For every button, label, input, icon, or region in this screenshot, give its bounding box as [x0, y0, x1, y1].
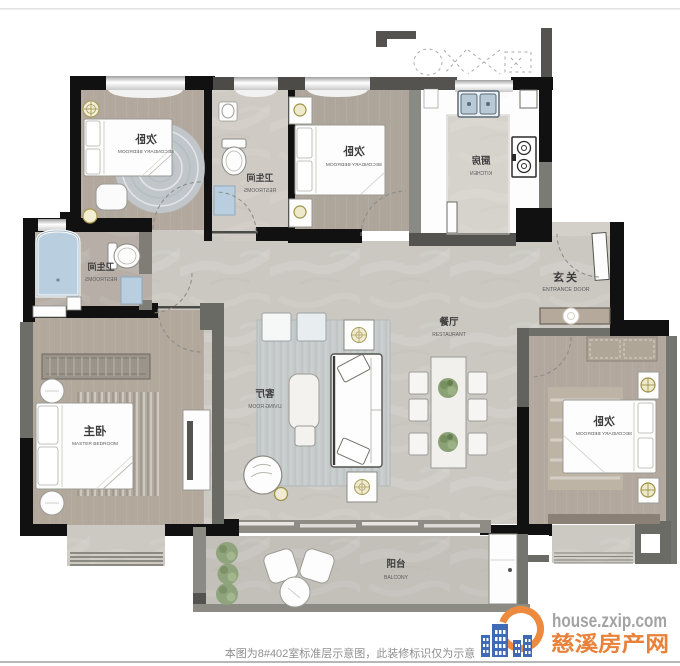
svg-text:SECONDARY BEDROOM: SECONDARY BEDROOM — [326, 162, 382, 168]
svg-text:house.zxip.com: house.zxip.com — [552, 611, 667, 632]
svg-text:LIVING ROOM: LIVING ROOM — [248, 404, 281, 410]
svg-text:KITCHEN: KITCHEN — [470, 171, 492, 177]
svg-text:次卧: 次卧 — [135, 132, 157, 146]
svg-text:卫生间: 卫生间 — [87, 261, 114, 272]
svg-text:SECONDARY BEDROOM: SECONDARY BEDROOM — [576, 431, 632, 437]
svg-text:阳台: 阳台 — [386, 558, 406, 570]
svg-text:主卧: 主卧 — [84, 424, 107, 438]
svg-text:RESTROOMS: RESTROOMS — [84, 277, 117, 283]
svg-text:厨房: 厨房 — [471, 155, 490, 167]
svg-text:MASTER BEDROOM: MASTER BEDROOM — [72, 441, 118, 447]
svg-text:RESTROOMS: RESTROOMS — [243, 188, 276, 194]
svg-text:BALCONY: BALCONY — [384, 575, 409, 581]
svg-text:客厅: 客厅 — [255, 388, 276, 400]
svg-text:ENTRANCE DOOR: ENTRANCE DOOR — [542, 287, 589, 293]
svg-text:餐厅: 餐厅 — [438, 316, 459, 328]
svg-text:SECONDARY BEDROOM: SECONDARY BEDROOM — [118, 149, 174, 155]
svg-text:次卧: 次卧 — [593, 414, 615, 428]
svg-text:次卧: 次卧 — [343, 144, 365, 158]
svg-text:RESTAURANT: RESTAURANT — [432, 332, 466, 338]
svg-text:慈溪房产网: 慈溪房产网 — [551, 632, 669, 656]
svg-text:卫生间: 卫生间 — [246, 172, 273, 183]
svg-text:本图为8#402室标准层示意图，此装修标识仅为示意: 本图为8#402室标准层示意图，此装修标识仅为示意 — [225, 646, 476, 660]
svg-text:玄关: 玄关 — [553, 270, 579, 284]
